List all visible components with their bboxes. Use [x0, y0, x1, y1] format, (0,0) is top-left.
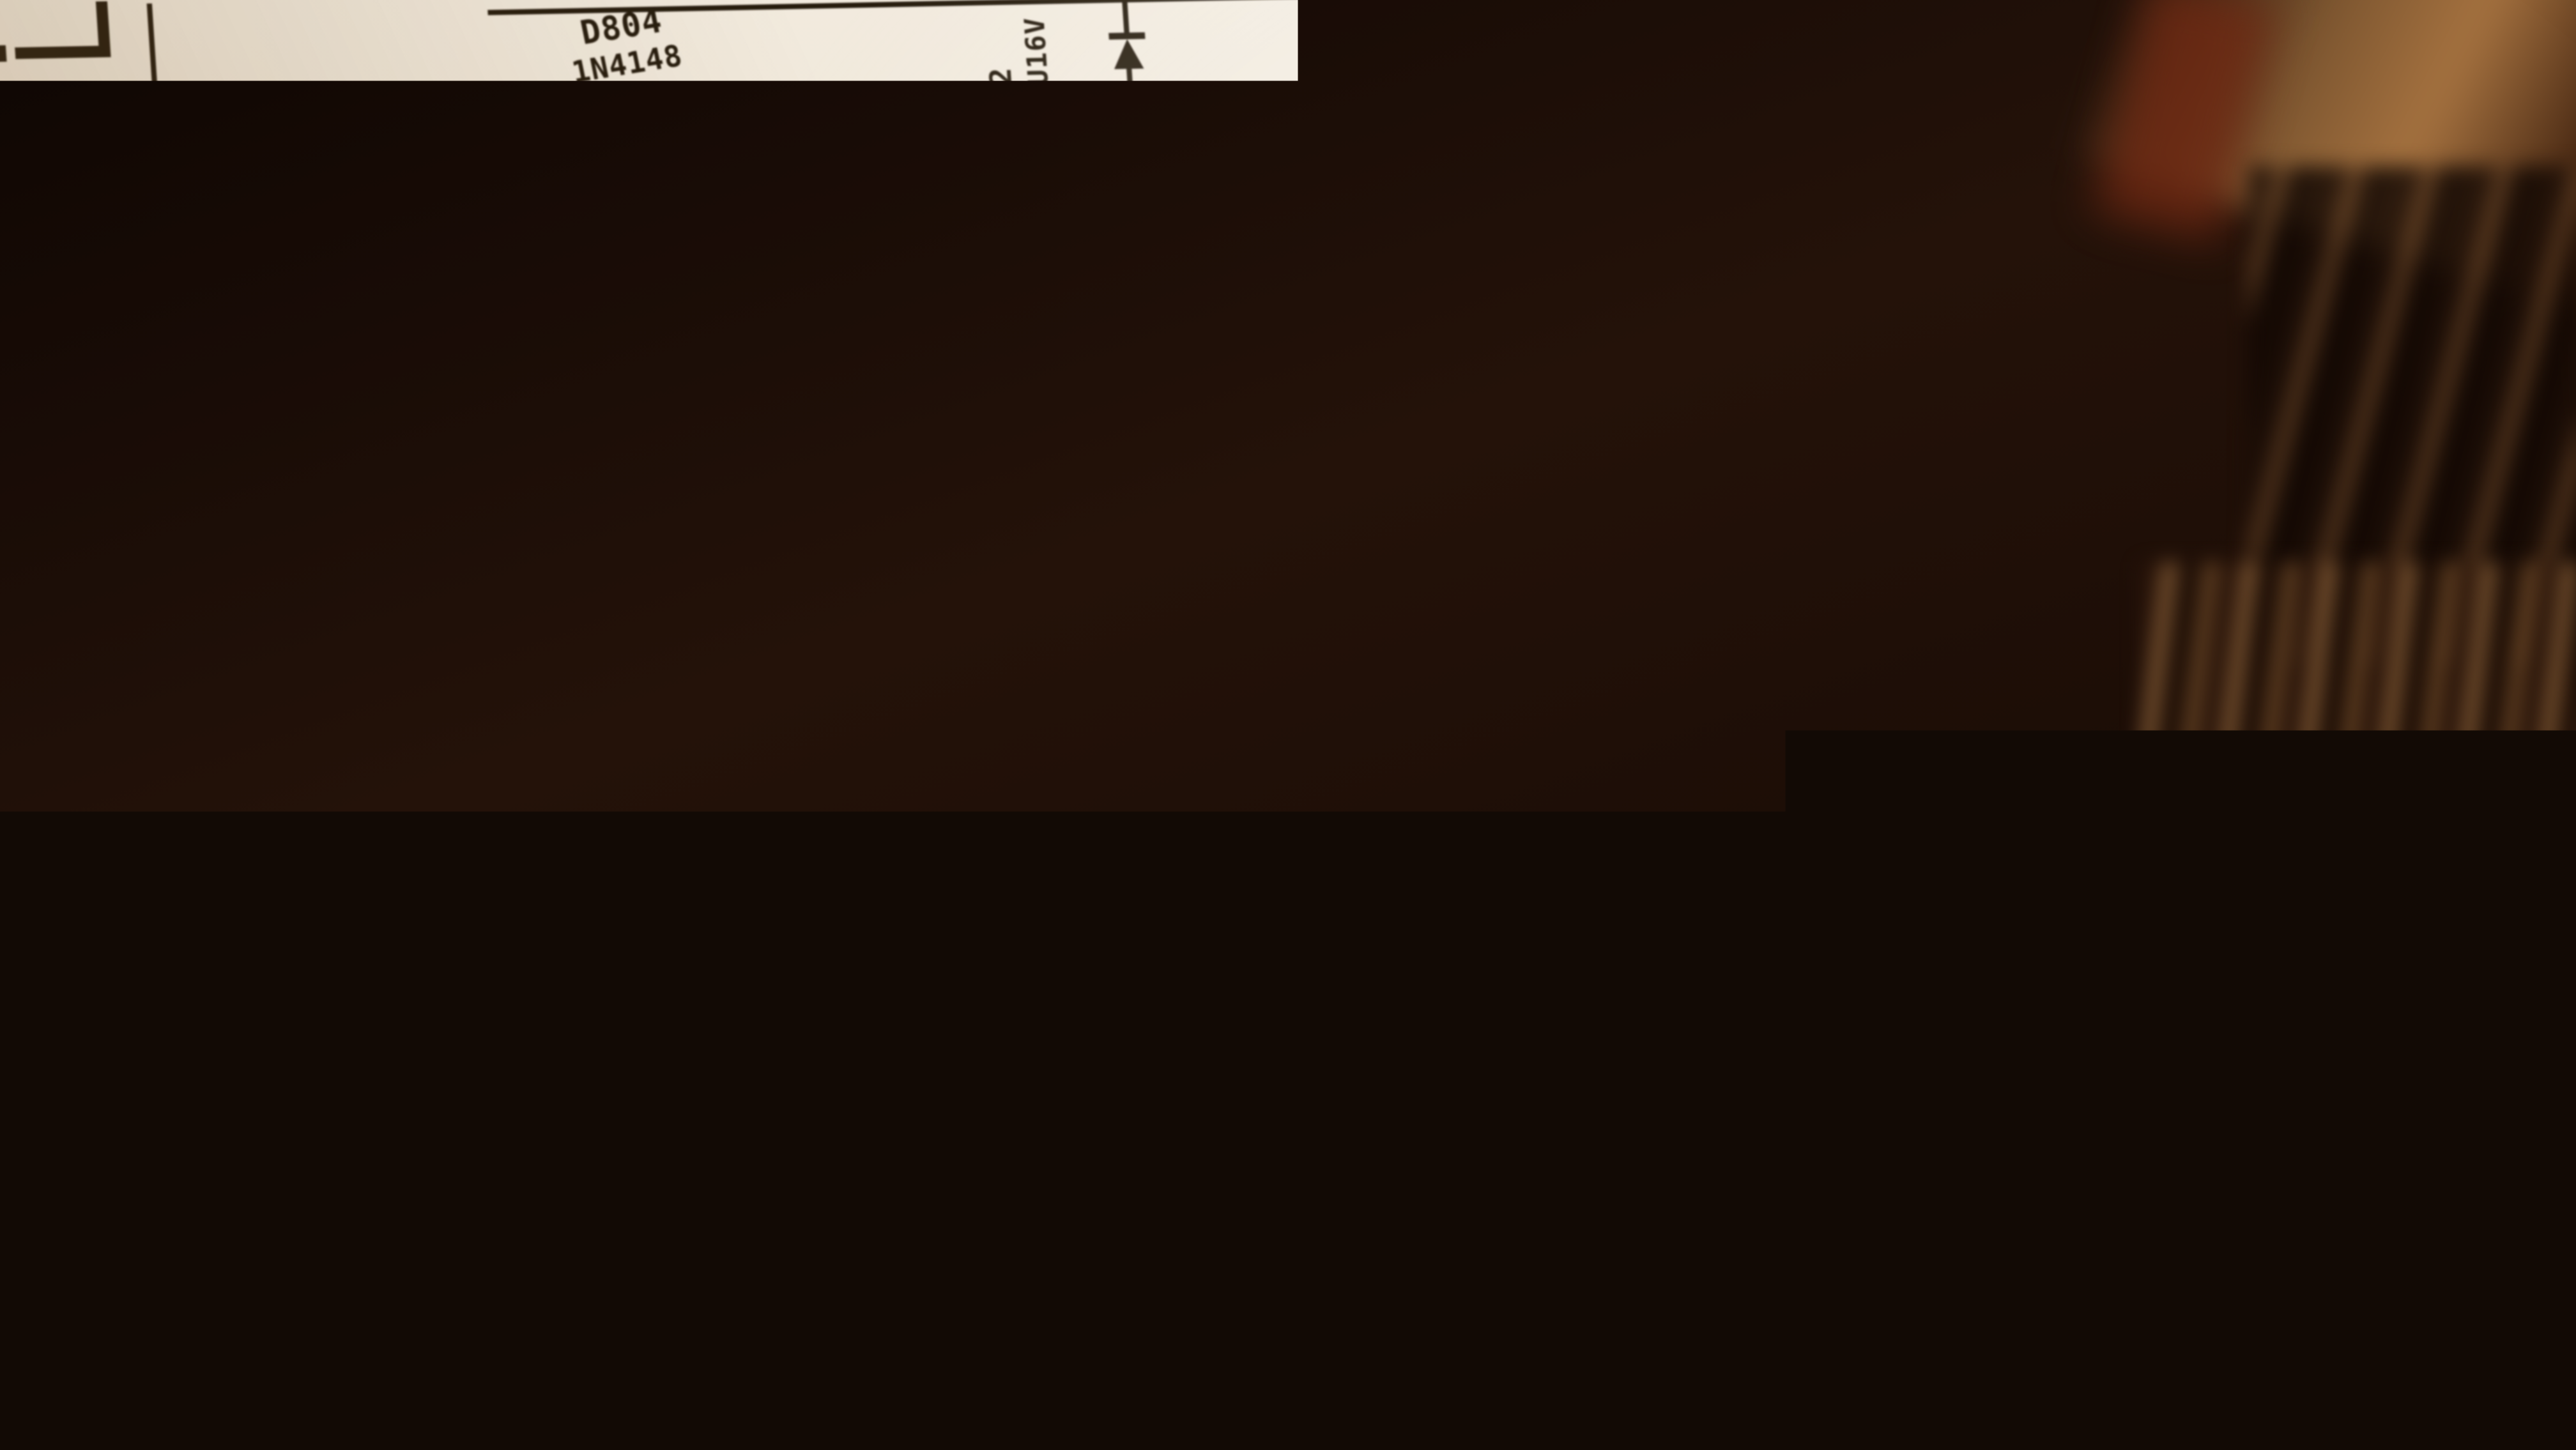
photo-scene: D804 1N4148 C802 100U16V ZD802 R804 3K3 … [0, 0, 2576, 1449]
